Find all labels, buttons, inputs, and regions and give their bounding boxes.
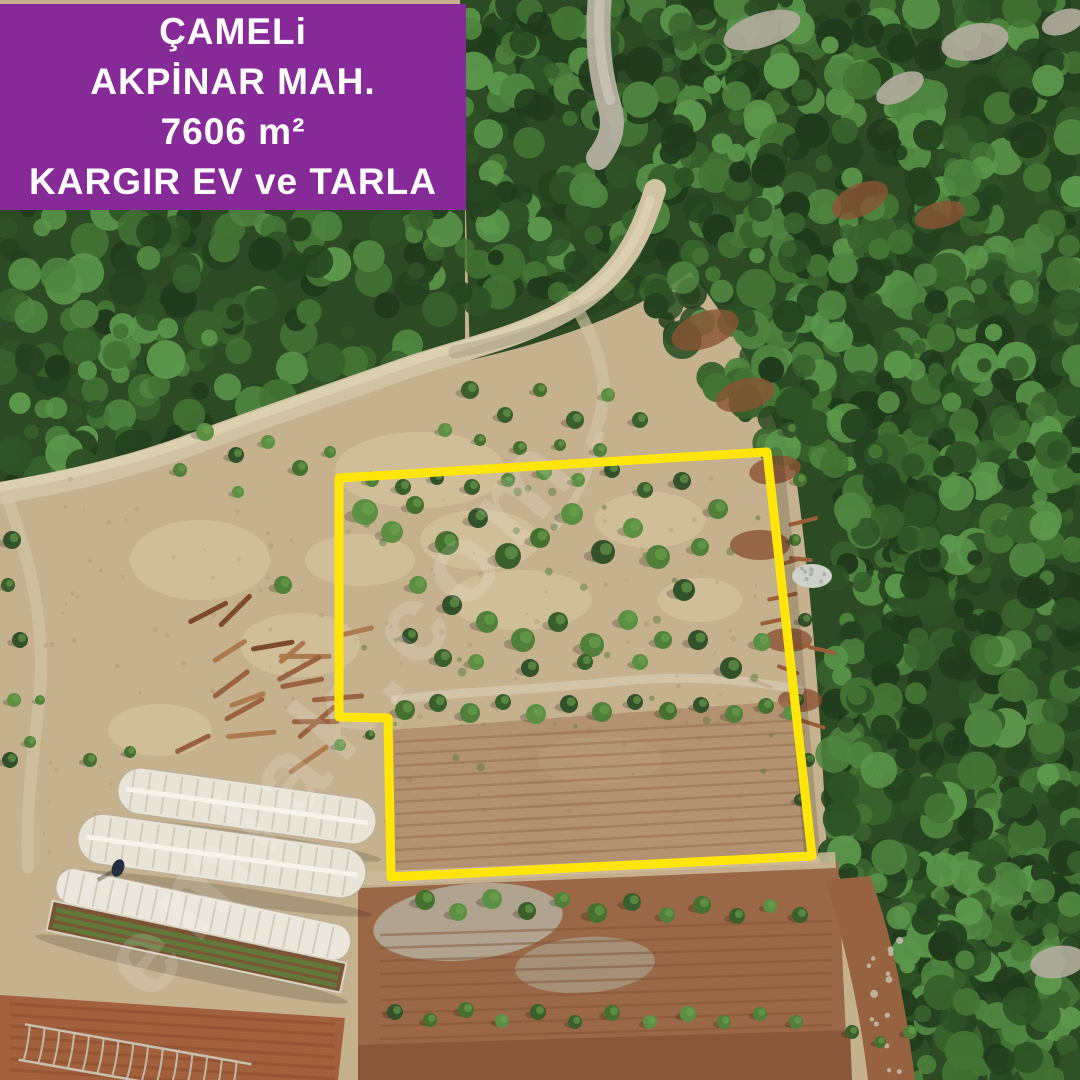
listing-banner: ÇAMELi AKPİNAR MAH. 7606 m² KARGIR EV ve… [0,4,466,210]
banner-area-size: 7606 m² [161,107,306,157]
banner-property-type: KARGIR EV ve TARLA [29,157,437,207]
listing-image: emlak.com ÇAMELi AKPİNAR MAH. 7606 m² KA… [0,0,1080,1080]
banner-location-neighborhood: AKPİNAR MAH. [90,57,375,107]
banner-location-district: ÇAMELi [159,7,307,57]
